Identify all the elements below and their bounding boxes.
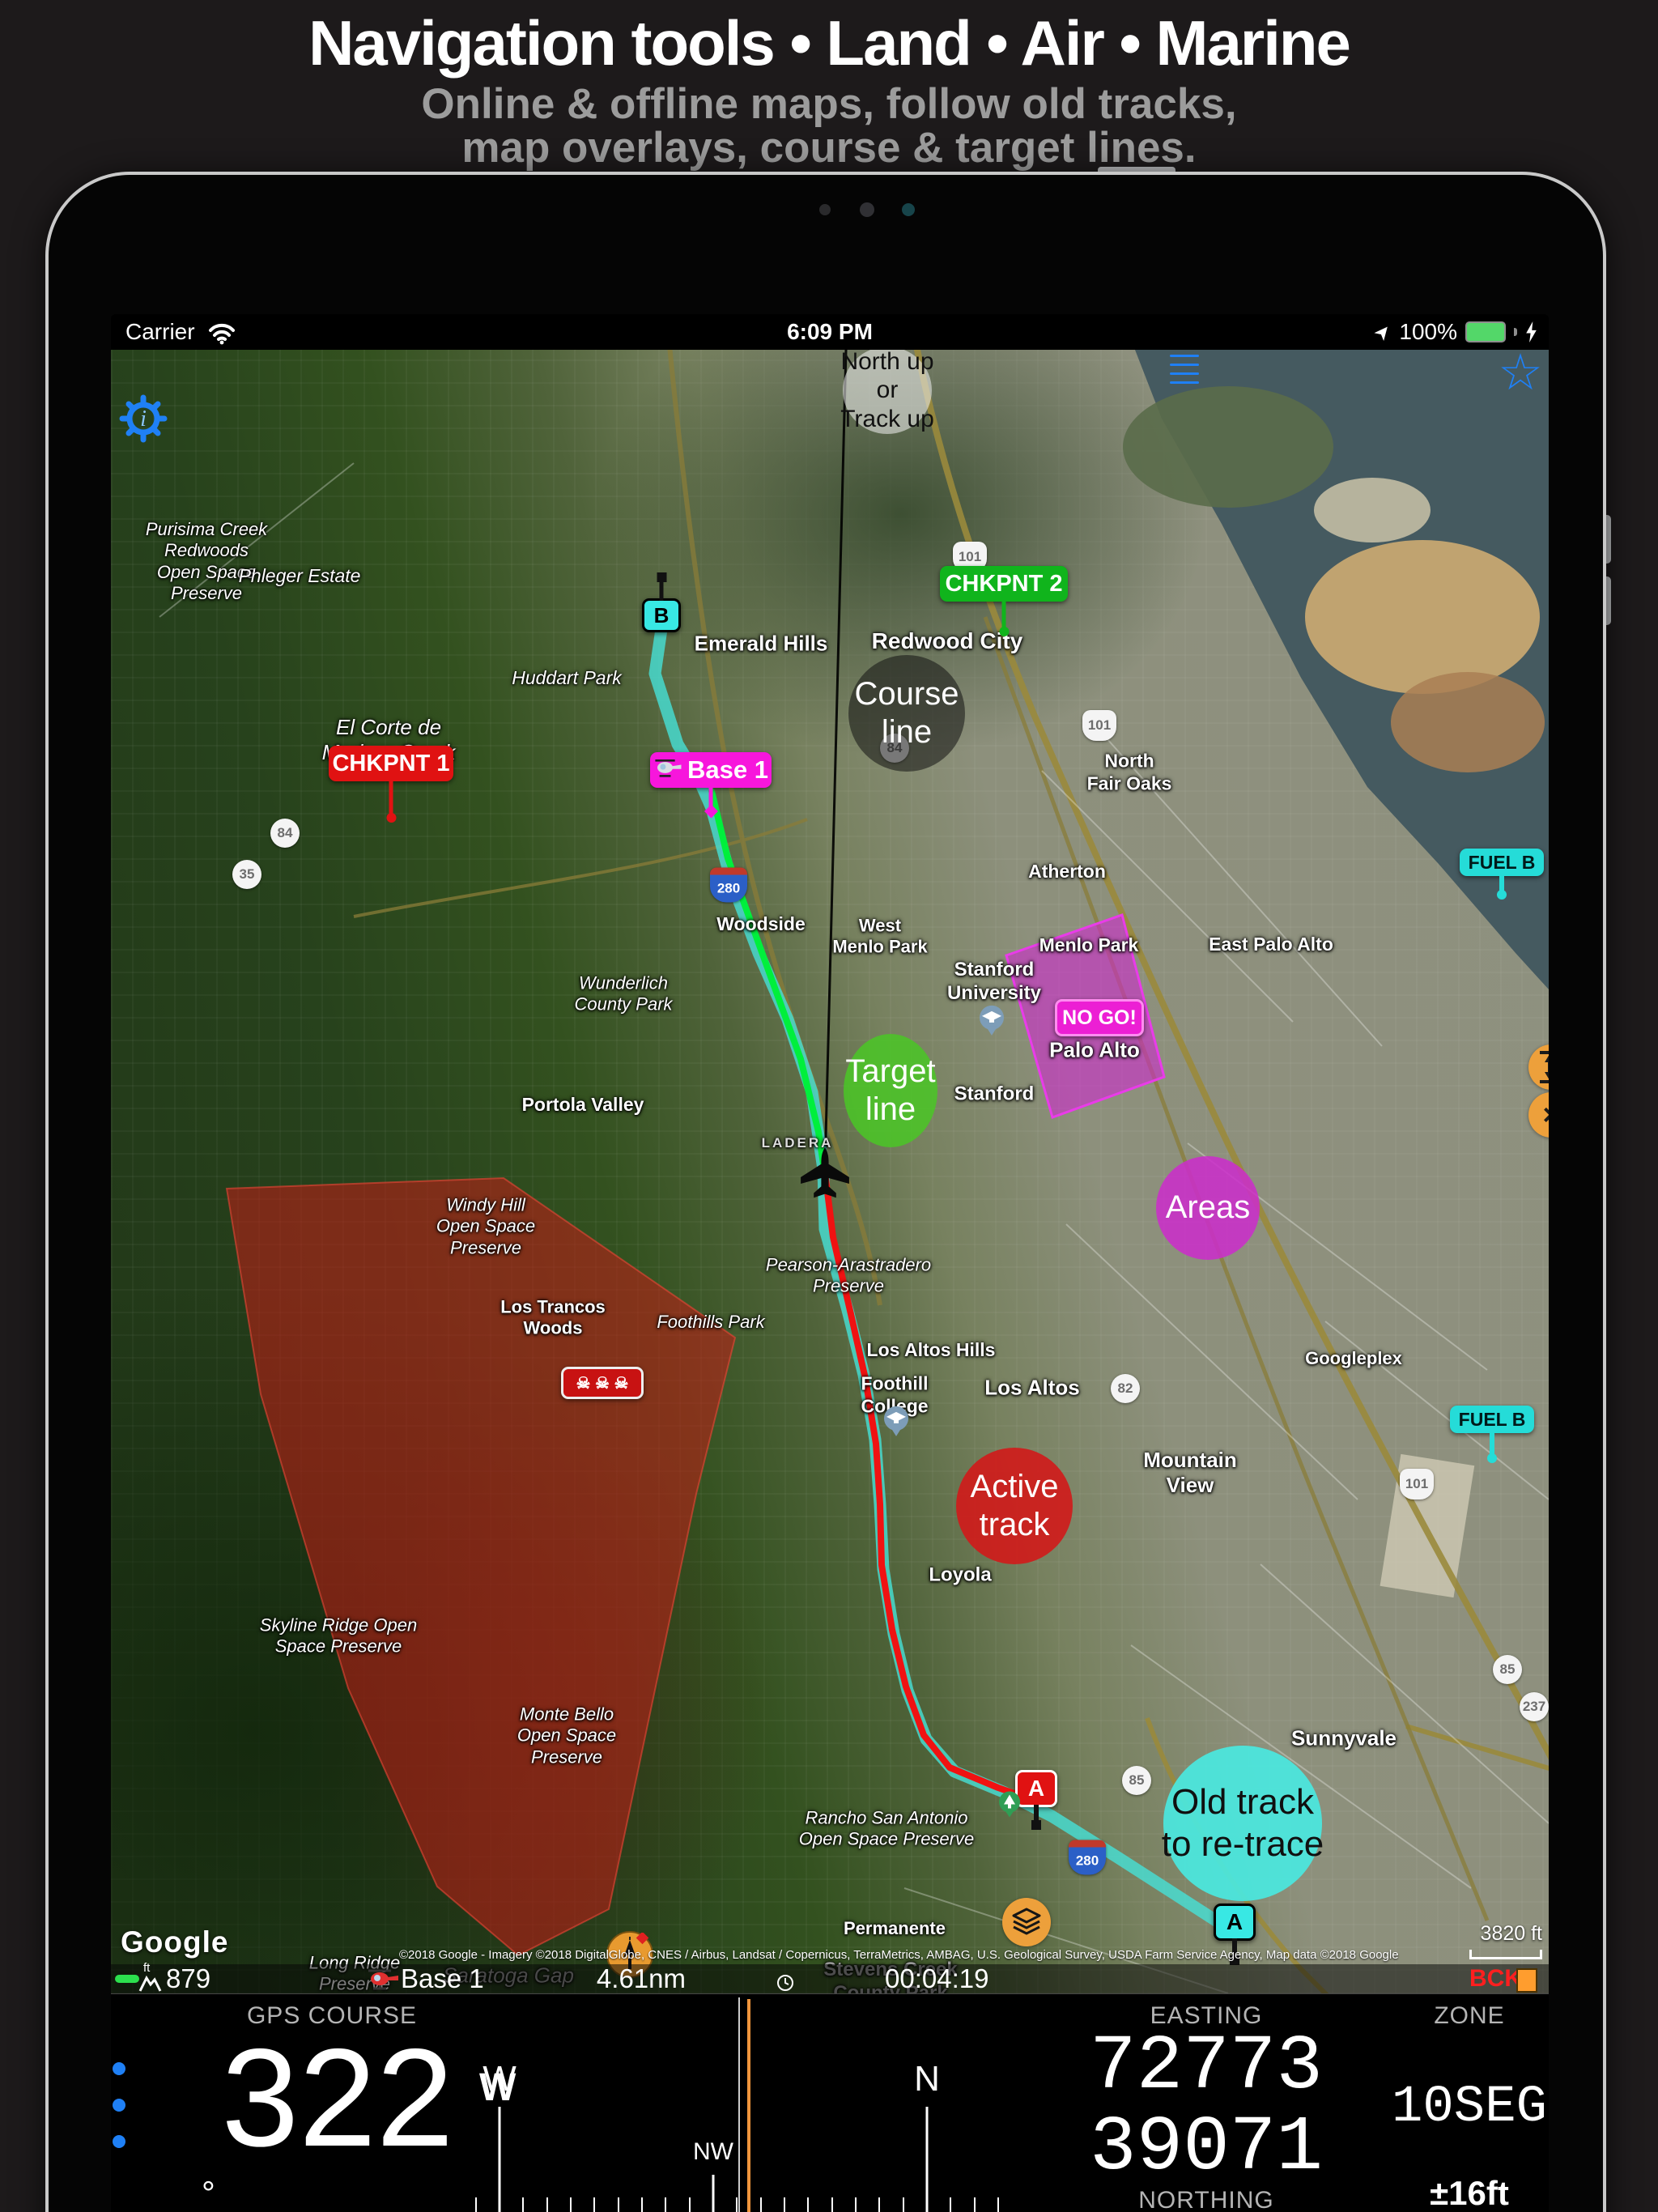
compass-tick: [736, 2197, 738, 2212]
map-label: Woodside: [716, 913, 805, 936]
map-label: Windy Hill Open Space Preserve: [436, 1194, 535, 1258]
charging-bolt-icon: [1525, 321, 1537, 342]
compass-cardinal-label: N: [914, 2059, 940, 2099]
map-label: Loyola: [929, 1564, 991, 1588]
back-mode-indicator[interactable]: [1516, 1968, 1537, 1993]
map-label: Portola Valley: [522, 1094, 644, 1117]
easting-value[interactable]: 72773: [1085, 2028, 1328, 2106]
map-attribution: ©2018 Google - Imagery ©2018 DigitalGlob…: [399, 1948, 1542, 1962]
northing-value[interactable]: 39071: [1085, 2109, 1328, 2187]
elapsed-time-value[interactable]: 00:04:19: [885, 1964, 988, 1993]
accuracy-value: ±16ft: [1348, 2174, 1549, 2212]
northing-label: NORTHING: [1085, 2187, 1328, 2212]
app-store-screenshot: Navigation tools • Land • Air • Marine O…: [0, 0, 1658, 2212]
favorite-star-icon[interactable]: ☆: [1492, 350, 1549, 400]
checkpoint-1-flag[interactable]: CHKPNT 1: [329, 746, 453, 781]
sensor-dot: [819, 204, 831, 215]
compass-tick: [498, 2107, 500, 2212]
badge-pin-stem: [1034, 1805, 1039, 1821]
map-label: West Menlo Park: [832, 916, 927, 959]
route-shield: 280: [1069, 1840, 1106, 1875]
route-shield: 101: [1082, 710, 1116, 741]
badge-pin-stem: [660, 581, 664, 601]
map-label: East Palo Alto: [1209, 934, 1333, 956]
map-label: Stanford: [954, 1083, 1035, 1107]
graduation-cap-pin: [882, 1406, 911, 1445]
target-waypoint-name[interactable]: Base 1: [401, 1964, 484, 1993]
clock-time: 6:09 PM: [111, 319, 1549, 345]
map-label: Monte Bello Open Space Preserve: [517, 1704, 616, 1767]
map-label: LADERA: [762, 1135, 834, 1151]
altitude-value[interactable]: 879: [166, 1964, 210, 1993]
badge-pin-stem: [709, 788, 713, 807]
map-label: Wunderlich County Park: [574, 973, 672, 1016]
menu-icon[interactable]: [1170, 351, 1199, 387]
waypoint-a-old-track[interactable]: A: [1214, 1904, 1256, 1941]
compass-tick: [807, 2197, 809, 2212]
route-shield: 85: [1493, 1655, 1522, 1684]
compass-cardinal-label: W: [483, 2059, 517, 2099]
map-scale-value: 3820 ft: [1481, 1922, 1542, 1946]
map-label: Atherton: [1028, 861, 1106, 883]
map-label: Sunnyvale: [1291, 1725, 1397, 1750]
map-label: Rancho San Antonio Open Space Preserve: [799, 1808, 974, 1851]
map-label: Purisima Creek Redwoods Open Space Prese…: [146, 519, 267, 605]
status-bar: Carrier 6:09 PM ➤ 100%: [111, 316, 1549, 350]
active-track-callout: Active track: [956, 1448, 1073, 1564]
course-line-callout: Course line: [848, 655, 965, 772]
map-label: Los Altos: [984, 1375, 1079, 1400]
tree-pin: [997, 1791, 1022, 1827]
compass-tick: [950, 2197, 951, 2212]
fuel-b-south-flag[interactable]: FUEL B: [1450, 1406, 1534, 1433]
checkpoint-2-flag[interactable]: CHKPNT 2: [940, 566, 1068, 602]
nav-data-strip: ft 879 Base 1 4.61nm 00:04:19 BCK: [111, 1964, 1549, 1993]
speed-dash-icon: [115, 1975, 139, 1983]
badge-pin-stem: [389, 781, 393, 814]
map-label: Mountain View: [1143, 1448, 1237, 1498]
compass-cardinal-label: NW: [693, 2138, 733, 2166]
compass-tick: [760, 2197, 762, 2212]
back-mode-label[interactable]: BCK: [1469, 1964, 1522, 1993]
map-label: Los Trancos Woods: [500, 1297, 606, 1340]
route-shield: 85: [1122, 1766, 1151, 1795]
helicopter-icon: [367, 1967, 399, 1997]
no-go-area-label[interactable]: NO GO!: [1055, 999, 1144, 1036]
badge-pin-cap: [386, 813, 396, 823]
badge-pin-cap: [1031, 1820, 1041, 1830]
compass-tick: [641, 2197, 643, 2212]
route-shield: 84: [270, 819, 300, 848]
marketing-title: Navigation tools • Land • Air • Marine: [0, 6, 1658, 80]
compass-tick: [593, 2197, 595, 2212]
badge-pin-cap: [1497, 890, 1507, 900]
settings-gear-icon[interactable]: i: [117, 393, 169, 445]
distance-value[interactable]: 4.61nm: [564, 1964, 686, 1993]
compass-tick: [665, 2197, 666, 2212]
map-label: Googleplex: [1305, 1348, 1402, 1369]
badge-pin-stem: [1499, 876, 1504, 891]
compass-tick: [712, 2175, 714, 2212]
compass-tick: [997, 2197, 999, 2212]
layers-icon[interactable]: [1002, 1898, 1051, 1946]
map-label: Permanente: [844, 1918, 946, 1939]
compass-tick: [784, 2197, 785, 2212]
map-label: North Fair Oaks: [1087, 750, 1172, 794]
waypoint-b-flag[interactable]: B: [642, 598, 681, 632]
marketing-subtitle-line2: map overlays, course & target lines.: [0, 123, 1658, 172]
marketing-subtitle-line1: Online & offline maps, follow old tracks…: [0, 79, 1658, 129]
compass-tick: [689, 2197, 691, 2212]
route-shield: 237: [1520, 1692, 1549, 1721]
altitude-unit: ft: [143, 1962, 150, 1974]
compass-tick: [878, 2197, 880, 2212]
route-shield: 35: [232, 860, 261, 889]
camera-icon: [860, 202, 874, 217]
waypoint-base1-flag[interactable]: Base 1: [650, 752, 772, 788]
map-label: Emerald Hills: [695, 631, 828, 656]
compass-tick: [475, 2197, 477, 2212]
graduation-cap-pin: [977, 1005, 1006, 1044]
badge-pin-stem: [1490, 1433, 1494, 1454]
areas-callout: Areas: [1156, 1156, 1260, 1260]
heading-indicator-line: [747, 1999, 750, 2212]
map-label: Palo Alto: [1049, 1037, 1140, 1062]
map-label: Stanford University: [947, 959, 1041, 1006]
compass-tick: [570, 2197, 572, 2212]
satellite-map[interactable]: Purisima Creek Redwoods Open Space Prese…: [111, 350, 1549, 1993]
compass-tape: WNWN: [111, 1994, 1549, 2212]
compass-tick: [903, 2197, 904, 2212]
compass-tick: [926, 2107, 929, 2212]
zone-label: ZONE: [1348, 2002, 1549, 2030]
target-line-callout: Target line: [844, 1034, 937, 1147]
battery-icon: [1465, 321, 1506, 342]
compass-tick: [831, 2197, 833, 2212]
svg-text:i: i: [140, 406, 147, 432]
map-label: Phleger Estate: [239, 565, 361, 588]
north-up-callout: North up or Track up: [843, 350, 932, 434]
badge-pin-cap: [999, 627, 1009, 636]
google-logo: Google: [121, 1925, 228, 1959]
altitude-mountain-icon: ft: [138, 1965, 166, 1993]
front-camera-icon: [902, 203, 915, 216]
map-label: Los Altos Hills: [867, 1339, 996, 1362]
map-label: Skyline Ridge Open Space Preserve: [260, 1615, 417, 1658]
badge-pin-stem: [1002, 602, 1006, 627]
route-shield: 280: [710, 868, 747, 903]
badge-pin-cap: [1487, 1453, 1497, 1463]
map-label: Huddart Park: [512, 667, 622, 690]
route-shield: 101: [1400, 1469, 1434, 1499]
old-track-callout: Old track to re-trace: [1163, 1746, 1322, 1901]
compass-tick: [546, 2197, 548, 2212]
helicopter-icon: [653, 755, 682, 785]
map-label: Menlo Park: [1039, 934, 1139, 957]
badge-pin-cap: [657, 572, 666, 582]
compass-tick: [855, 2197, 857, 2212]
map-label: Pearson-Arastradero Preserve: [766, 1255, 931, 1298]
compass-tick: [618, 2197, 619, 2212]
compass-tick: [974, 2197, 976, 2212]
route-shield: 82: [1111, 1374, 1140, 1403]
zone-value[interactable]: 10SEG: [1348, 2078, 1549, 2137]
badge-pin-cap: [704, 805, 718, 819]
gps-data-bar: GPS COURSE 322 W ° WNWN EASTING 72773 39…: [111, 1993, 1549, 2212]
battery-percent: 100%: [1399, 319, 1457, 345]
fuel-b-north-flag[interactable]: FUEL B: [1460, 849, 1544, 876]
map-label: Foothills Park: [657, 1312, 764, 1333]
danger-area-marker[interactable]: ☠ ☠ ☠: [561, 1367, 644, 1399]
compass-tick: [522, 2197, 524, 2212]
battery-tip: [1514, 328, 1517, 336]
